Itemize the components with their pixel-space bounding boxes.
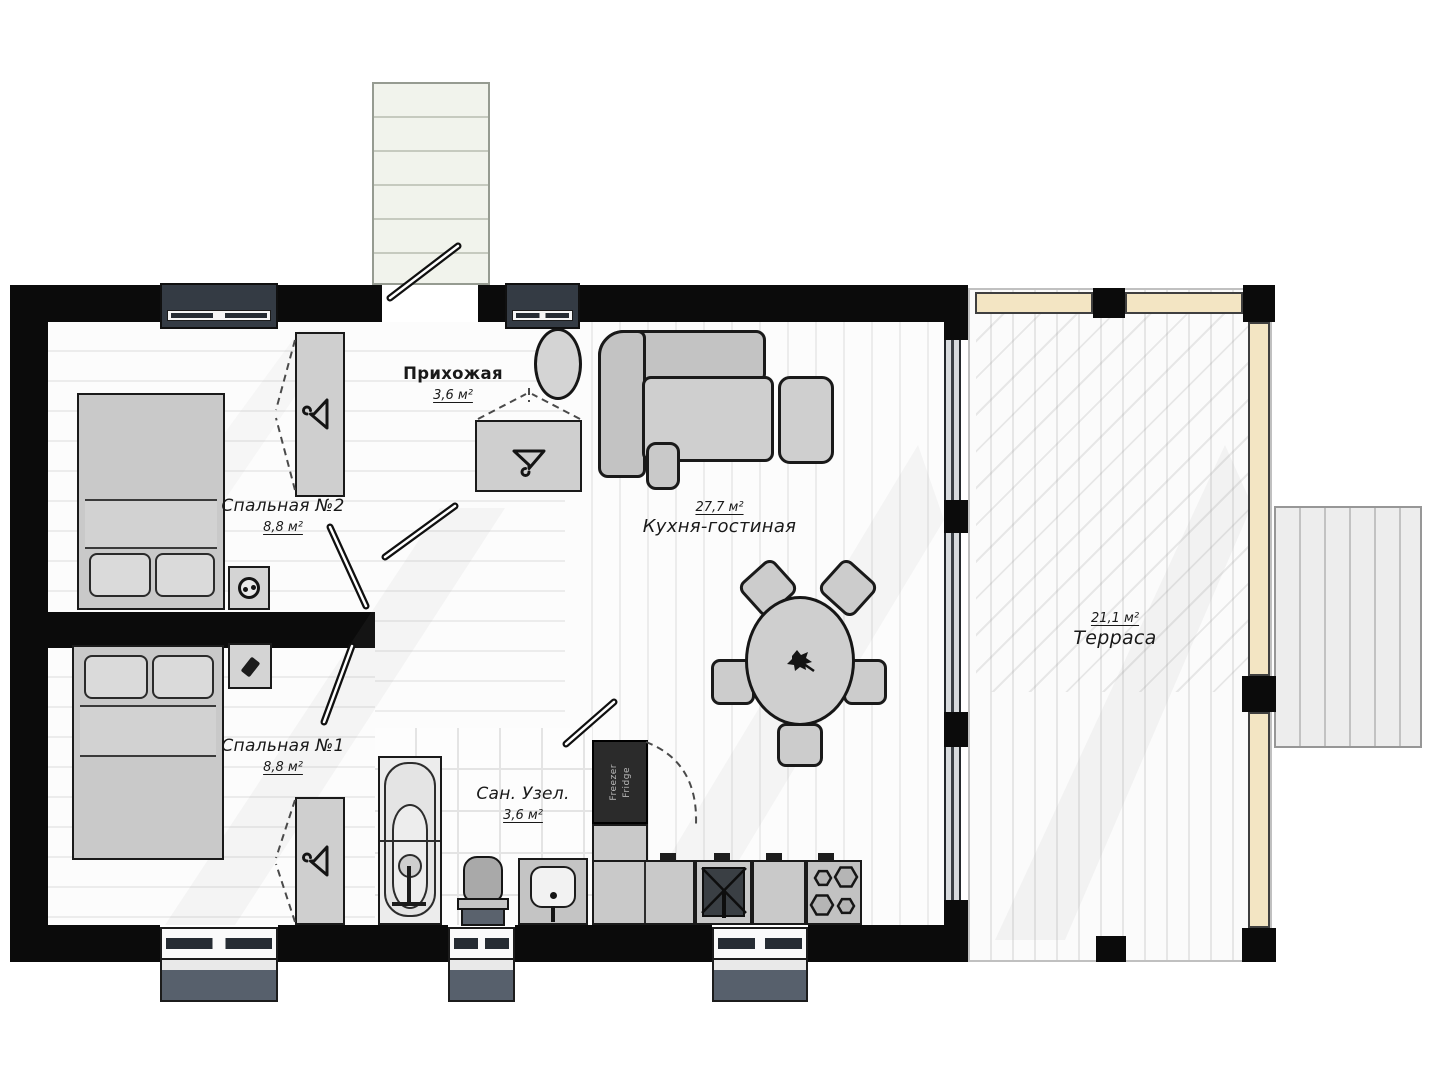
label-bedroom1: Спальная №1 8,8 м² [218,736,348,777]
fridge: Freezer Fridge [592,740,648,824]
wall [515,925,712,962]
window-sash [167,310,271,321]
toilet-bowl [463,856,503,902]
kitchen-cabinet-corner [592,824,648,862]
hanger-icon [300,394,340,434]
label-bathroom: Сан. Узел. 3,6 м² [468,784,578,825]
wardrobe-bedroom1 [295,797,345,925]
label-terrace: 21,1 м² Терраса [1055,608,1175,651]
kitchen-cabinet [592,860,695,925]
toilet [455,856,511,926]
wall-left [10,285,48,962]
hanger-icon [300,841,340,881]
room-area: 3,6 м² [468,808,578,824]
cabinet-handle [660,853,676,861]
window-sash [512,310,573,321]
sink-basin [530,866,576,908]
bed-fold [85,499,217,549]
bed-bedroom1 [72,645,224,860]
terrace-post-top-middle [1093,288,1125,318]
bathroom-vanity [518,858,588,925]
room-area: 21,1 м² [1055,611,1175,627]
bathtub-tap-bar [392,902,426,906]
wardrobe-bedroom2 [295,332,345,497]
window-sill-box [712,958,808,1002]
pillow [152,655,214,699]
bathtub-tap [407,866,411,906]
glass-wall-panel [944,747,961,900]
bathtub-line [380,840,440,842]
window-bedroom1 [160,927,278,960]
glass-wall-panel [944,340,961,500]
sofa-chaise [598,330,646,478]
room-area: 27,7 м² [627,500,812,516]
hanger-icon [507,436,551,480]
bed-bedroom2 [77,393,225,610]
lamp-icon [238,577,260,599]
wall [808,925,938,962]
entry-steps [372,82,490,285]
wall [278,285,382,322]
terrace-railing-top-right [1125,292,1243,314]
wall-bedroom-divider [48,610,375,648]
fridge-label: Freezer Fridge [594,742,646,822]
bed-fold [80,705,216,757]
glass-wall-panel [944,533,961,712]
fridge-label-line2: Fridge [622,767,632,798]
cabinet-handle [818,853,834,861]
terrace-railing-right-lower [1248,712,1270,928]
room-name: Спальная №1 [218,736,348,757]
bathtub [378,756,442,925]
lamp-dot [243,587,248,592]
window-sill-box [448,958,515,1002]
room-name: Терраса [1055,627,1175,651]
pillow [155,553,215,597]
sink-drain [550,892,557,899]
coat-cabinet [475,420,582,492]
dining-table [745,596,855,726]
terrace-railing-right-upper [1248,322,1270,676]
pillow [84,655,148,699]
dining-chair [777,723,823,767]
room-name: Спальная №2 [218,496,348,517]
sofa-ottoman [778,376,834,464]
terrace-post-bottom-middle [1096,936,1126,962]
terrace-post-top-right [1243,285,1275,322]
cabinet-divider [644,862,646,923]
floor-plan: Freezer Fridge [0,0,1440,1080]
room-name: Прихожая [398,364,508,385]
nightstand-bedroom2 [228,566,270,610]
nightstand-bedroom1 [228,643,272,689]
sofa-stool [646,442,680,490]
cabinet-handle [766,853,782,861]
room-area: 8,8 м² [218,520,348,536]
toilet-tank [461,908,505,926]
room-name: Сан. Узел. [468,784,578,805]
kitchen-cabinet [752,860,806,925]
phone-icon [241,657,261,678]
room-area: 8,8 м² [218,760,348,776]
sink-tap [551,906,555,922]
mirror [534,328,582,400]
window-bedroom2 [160,283,278,329]
room-area: 3,6 м² [398,388,508,404]
label-kitchen-living: 27,7 м² Кухня-гостиная [627,497,812,539]
label-bedroom2: Спальная №2 8,8 м² [218,496,348,537]
lamp-dot [251,585,256,590]
pillow [89,553,151,597]
label-hallway: Прихожая 3,6 м² [398,364,508,404]
wall [10,925,160,962]
terrace-post-bottom-right [1242,928,1276,962]
window-hallway [505,283,580,329]
kitchen-sink [702,867,745,917]
room-name: Кухня-гостиная [627,516,812,539]
window-kitchen [712,927,808,960]
stove [806,860,862,925]
wall [478,285,505,322]
terrace-post-right-middle [1242,676,1276,712]
wall [278,925,448,962]
window-bathroom [448,927,515,960]
fridge-label-line1: Freezer [609,764,619,801]
terrace-steps [1274,506,1422,748]
window-sill-box [160,958,278,1002]
kitchen-sink-unit [695,860,752,925]
wall [580,285,938,322]
cabinet-handle [714,853,730,861]
terrace-railing-top-left [975,292,1093,314]
